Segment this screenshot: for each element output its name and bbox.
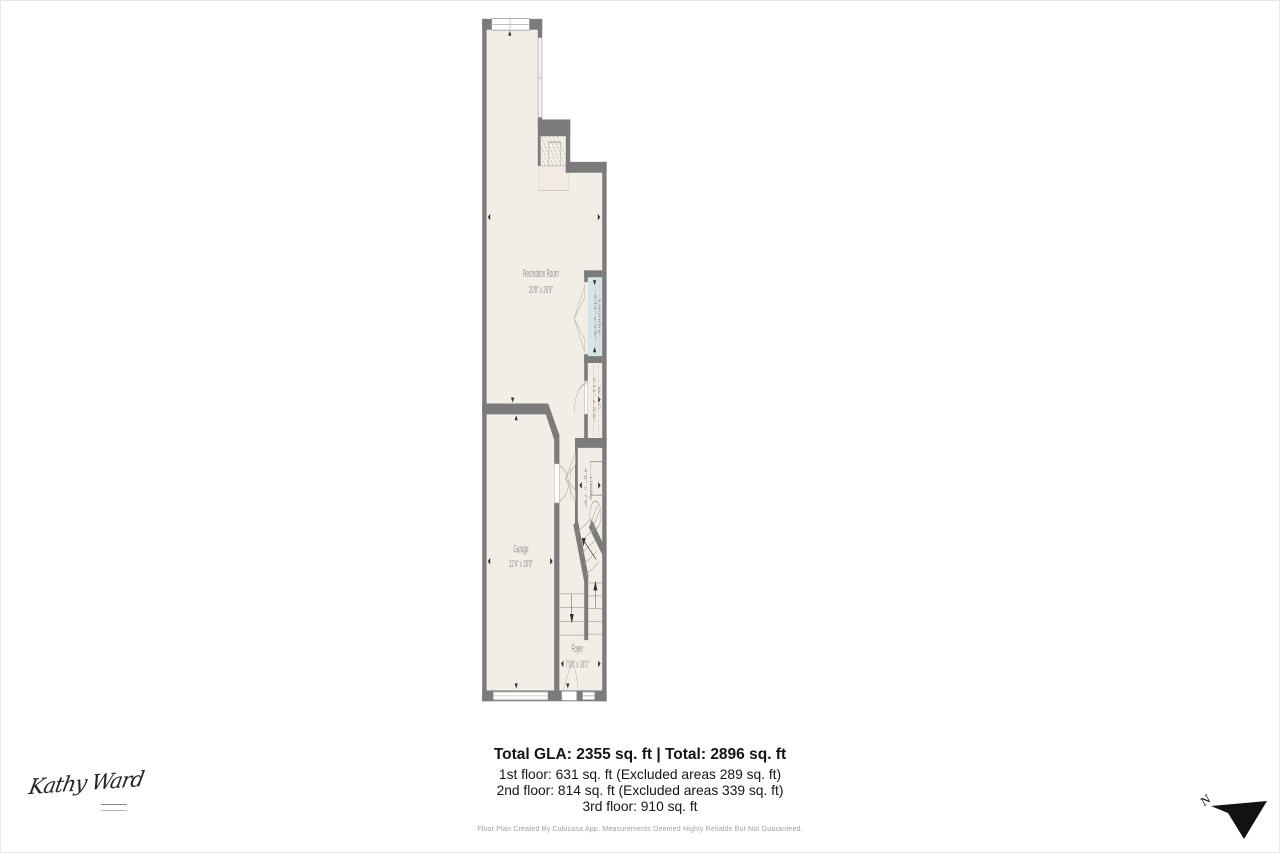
signature-name: Kathy Ward xyxy=(27,767,146,799)
svg-text:20'8" x 26'9": 20'8" x 26'9" xyxy=(529,284,553,296)
north-arrow-icon xyxy=(1199,792,1273,846)
room-label-utility: Utility xyxy=(589,476,593,501)
total-gla: Total GLA: 2355 sq. ft | Total: 2896 sq.… xyxy=(1,746,1279,764)
area-summary: Total GLA: 2355 sq. ft | Total: 2896 sq.… xyxy=(1,746,1279,816)
room-label-recreation: Recreation Room xyxy=(523,268,558,280)
svg-text:12'4" x 20'0": 12'4" x 20'0" xyxy=(509,558,533,570)
room-label-foyer: Foyer xyxy=(572,643,584,655)
floor-plan-drawing: Recreation Room 20'8" x 26'9" Garage 12'… xyxy=(481,11,801,721)
floor-plan-page: Recreation Room 20'8" x 26'9" Garage 12'… xyxy=(0,0,1280,853)
svg-text:2'11" x 5'6": 2'11" x 5'6" xyxy=(592,377,596,423)
north-compass: N xyxy=(1199,792,1273,846)
signature-logo: Kathy Ward xyxy=(29,771,169,826)
room-label-wic: W.I.C. xyxy=(597,386,601,413)
room-label-laundry: Laundry xyxy=(598,299,602,334)
disclaimer-text: Floor Plan Created By Cubicasa App. Meas… xyxy=(1,826,1279,833)
counter xyxy=(539,166,569,191)
front-door-threshold xyxy=(562,691,577,700)
second-floor-area: 2nd floor: 814 sq. ft (Excluded areas 33… xyxy=(1,783,1279,799)
signature-subtext xyxy=(101,804,127,811)
svg-text:4'8" x 7'8": 4'8" x 7'8" xyxy=(584,468,588,510)
room-label-garage: Garage xyxy=(513,543,528,555)
third-floor-area: 3rd floor: 910 sq. ft xyxy=(1,799,1279,815)
garage-house-door xyxy=(554,464,559,503)
wic-door xyxy=(585,382,588,415)
svg-text:7'10" x 18'1": 7'10" x 18'1" xyxy=(565,659,589,671)
first-floor-area: 1st floor: 631 sq. ft (Excluded areas 28… xyxy=(1,767,1279,783)
svg-text:2'11" x 5'8": 2'11" x 5'8" xyxy=(593,294,597,340)
